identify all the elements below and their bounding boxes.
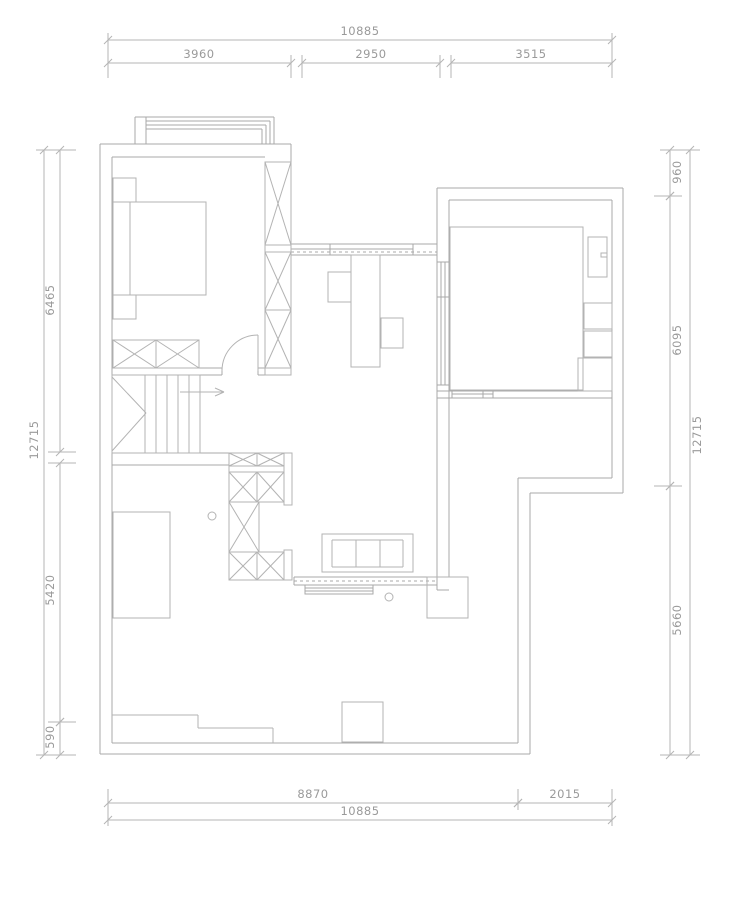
dim-label: 3960 [183, 47, 214, 61]
dim-bottom-seg2: 2015 [514, 787, 616, 807]
dim-label: 6465 [43, 284, 57, 315]
dim-bottom-seg1: 8870 [104, 787, 522, 807]
storage-cabinet [229, 453, 292, 580]
dim-right-seg2: 6095 [666, 192, 684, 490]
dim-label: 590 [43, 725, 57, 748]
terrace-window [294, 577, 437, 594]
dim-left-overall: 12715 [27, 146, 48, 759]
floor-plan-page: 1088539602950351588702015108856465542059… [0, 0, 740, 905]
desk-area [328, 255, 403, 367]
dim-right-overall: 12715 [686, 146, 704, 759]
dim-right-seg1: 960 [666, 146, 684, 200]
dim-label: 960 [670, 160, 684, 183]
dim-left-seg2: 5420 [43, 459, 64, 726]
dim-top-seg3: 3515 [447, 47, 616, 67]
room-left-window [437, 262, 449, 385]
dim-label: 3515 [515, 47, 546, 61]
bedroom-door [222, 335, 258, 371]
platform-room [450, 227, 612, 391]
dimension-extension-lines [36, 33, 700, 826]
dim-label: 5420 [43, 574, 57, 605]
stairs [112, 375, 224, 453]
bay-window [135, 117, 274, 144]
dim-label: 2950 [355, 47, 386, 61]
dim-top-seg2: 2950 [298, 47, 444, 67]
nightstands [113, 178, 136, 319]
dim-right-seg3: 5660 [666, 482, 684, 759]
floor-plan-canvas: 1088539602950351588702015108856465542059… [0, 0, 740, 905]
dim-top-overall: 10885 [104, 24, 616, 44]
dim-label: 2015 [549, 787, 580, 801]
planters [113, 512, 468, 742]
bed [113, 202, 206, 295]
dim-label: 12715 [690, 415, 704, 454]
dim-label: 10885 [340, 24, 379, 38]
dim-bottom-overall: 10885 [104, 804, 616, 824]
dim-label: 6095 [670, 324, 684, 355]
sofa [322, 534, 413, 572]
dim-label: 10885 [340, 804, 379, 818]
terrace-steps [112, 715, 273, 743]
dim-left-seg1: 6465 [43, 146, 64, 456]
hall-top-window [291, 244, 437, 255]
wardrobe-bottom [113, 340, 199, 368]
dim-label: 5660 [670, 604, 684, 635]
dim-label: 12715 [27, 420, 41, 459]
dim-label: 8870 [297, 787, 328, 801]
wardrobe-right [265, 162, 291, 375]
dim-top-seg1: 3960 [104, 47, 295, 67]
room-bottom-window [452, 391, 493, 398]
